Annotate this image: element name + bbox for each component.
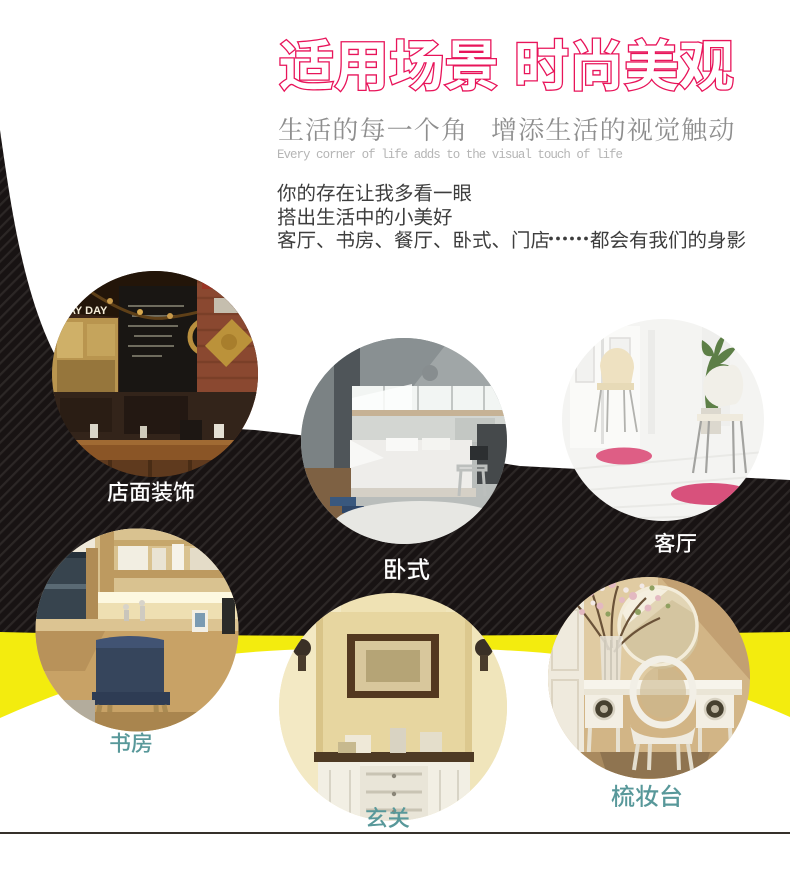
svg-text:Every corner of life adds to t: Every corner of life adds to the visual … <box>277 148 623 162</box>
